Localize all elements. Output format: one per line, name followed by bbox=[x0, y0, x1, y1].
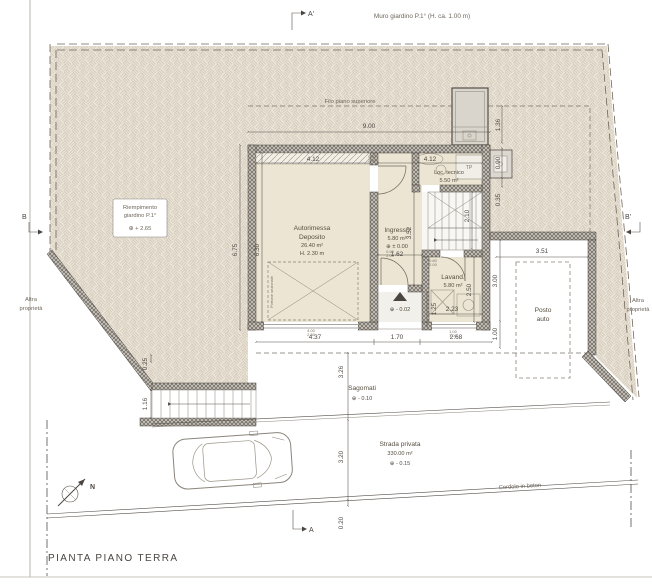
loctec-label: Loc. tecnico bbox=[434, 170, 464, 176]
filo-label: Filo piano superiore bbox=[325, 99, 376, 105]
autorimessa-label-1: Autorimessa bbox=[294, 225, 331, 232]
floor-plan-canvas: Filo piano superiore bbox=[0, 0, 652, 585]
dim-right-c: 0.35 bbox=[495, 193, 502, 206]
dim-right-b: 0.90 bbox=[495, 156, 502, 169]
ext-stair-north-wall bbox=[152, 383, 256, 390]
dim-stair-width: 1.16 bbox=[142, 397, 149, 410]
door-size-5h: 1.00 bbox=[449, 333, 458, 338]
floor-plan-sheet: Filo piano superiore bbox=[0, 0, 652, 585]
autorimessa-height: H. 2.30 m bbox=[300, 251, 325, 257]
dim-road: 3.20 bbox=[338, 450, 345, 463]
dim-posto-width: 3.51 bbox=[536, 248, 549, 255]
dim-stairs: 2.10 bbox=[464, 209, 471, 222]
curb-line-1 bbox=[47, 480, 638, 514]
north-label: N bbox=[90, 484, 95, 491]
autorimessa-label-2: Deposito bbox=[299, 234, 325, 241]
porch-level: ⊕ - 0.02 bbox=[390, 307, 411, 313]
tp-label: TP bbox=[466, 165, 473, 171]
ingresso-floor bbox=[378, 185, 422, 285]
strada-label: Strada privata bbox=[379, 441, 420, 448]
altra-proprieta-left-1: Altra bbox=[25, 297, 38, 303]
altra-proprieta-right-2: proprietà bbox=[627, 307, 651, 313]
curb-line-2 bbox=[47, 484, 638, 518]
stairs-floor bbox=[422, 192, 482, 250]
dim-porch-depth: 1.25 bbox=[431, 302, 438, 315]
dim-court-a: 3.00 bbox=[492, 274, 499, 287]
dim-lavand-width: 2.23 bbox=[446, 306, 459, 313]
section-marker-b-right: B' bbox=[625, 214, 631, 221]
posto-auto-label-1: Posto bbox=[535, 307, 552, 314]
dim-right-a: 1.36 bbox=[495, 118, 502, 131]
door-size-4h: 2.30 bbox=[307, 332, 316, 337]
dim-ingresso-length: 3.52 bbox=[406, 226, 413, 239]
strada-area: 330.00 m² bbox=[387, 451, 412, 457]
dim-sagomati: 3.26 bbox=[338, 365, 345, 378]
riempimento-label-2: giardino P.1° bbox=[124, 213, 157, 219]
sagomati-label: Sagomati bbox=[348, 385, 376, 392]
dim-total-width: 9.00 bbox=[363, 123, 376, 130]
dim-left-outer: 6.75 bbox=[232, 243, 239, 256]
portone-label: Portone sezionale bbox=[269, 275, 274, 308]
altra-proprieta-left-2: proprietà bbox=[20, 306, 44, 312]
strada-level: ⊕ - 0.15 bbox=[390, 461, 411, 467]
door-size-1h: 2.00 bbox=[368, 158, 377, 163]
posto-auto-label-2: auto bbox=[537, 316, 550, 323]
garden-stairs bbox=[152, 390, 256, 418]
court-north-wall bbox=[490, 232, 596, 240]
dim-front-b: 1.70 bbox=[391, 334, 404, 341]
section-marker-a-top: A' bbox=[308, 11, 314, 18]
chimney-block bbox=[452, 88, 488, 145]
dim-garage-top: 4.12 bbox=[307, 156, 320, 163]
dim-lavand-depth: 2.50 bbox=[466, 283, 473, 296]
dim-court-b: 1.00 bbox=[492, 327, 499, 340]
autorimessa-area: 26.40 m² bbox=[301, 243, 323, 249]
door-size-2h: 2.00 bbox=[386, 253, 395, 258]
riempimento-label-1: Riempimento bbox=[123, 205, 157, 211]
dim-stair-wall: 0.25 bbox=[142, 357, 149, 370]
sagomati-level: ⊕ - 0.10 bbox=[352, 396, 373, 402]
altra-proprieta-right-1: Altra bbox=[632, 298, 645, 304]
loctec-area: 5.50 m² bbox=[440, 178, 459, 184]
dim-left-inner: 6.30 bbox=[254, 243, 261, 256]
section-marker-a-bottom: A bbox=[309, 527, 314, 534]
court-east-wall bbox=[588, 240, 596, 355]
car bbox=[172, 429, 294, 493]
dim-curb: 0.20 bbox=[338, 516, 345, 529]
muro-giardino-label: Muro giardino P.1° (H. ca. 1.00 m) bbox=[374, 12, 470, 20]
ingresso-area: 5.80 m² bbox=[388, 236, 407, 242]
drawing-title: PIANTA PIANO TERRA bbox=[48, 553, 178, 564]
dim-loctec-top: 4.12 bbox=[424, 156, 437, 163]
riempimento-box: Riempimento giardino P.1° ⊕ + 2.65 bbox=[113, 199, 167, 237]
lavanderia-area: 5.80 m² bbox=[444, 283, 463, 289]
section-marker-b-left: B bbox=[22, 214, 27, 221]
lavanderia-label: Lavand. bbox=[441, 274, 465, 281]
riempimento-level: ⊕ + 2.65 bbox=[129, 226, 152, 232]
door-size-3h: 2.00 bbox=[429, 262, 438, 267]
north-compass: N bbox=[58, 479, 95, 506]
